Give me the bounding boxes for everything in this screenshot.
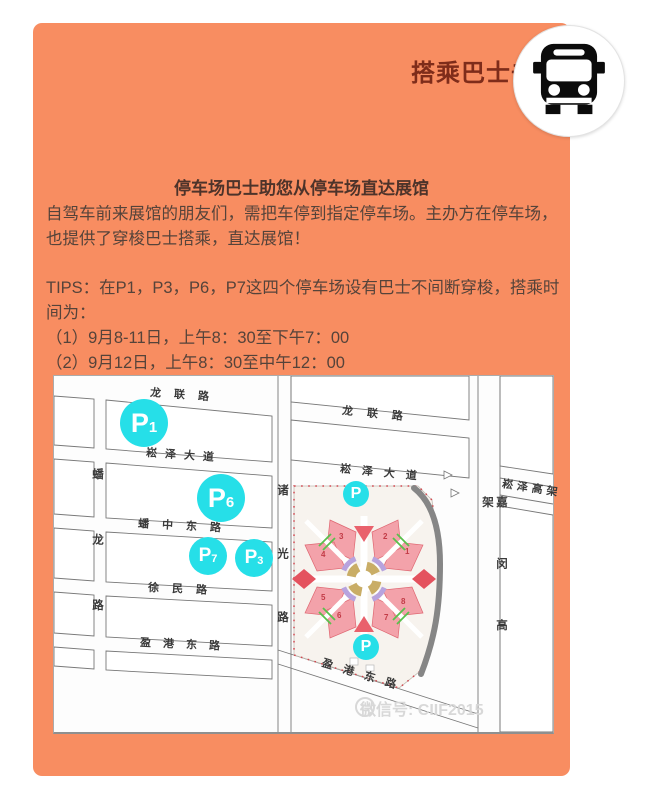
hall-number-7: 7: [384, 614, 388, 622]
watermark: 微信号: CIIF2015: [354, 696, 484, 720]
hall-number-3: 3: [339, 533, 343, 541]
hall-number-5: 5: [321, 594, 325, 602]
bus-icon: [530, 40, 608, 123]
hall-number-4: 4: [321, 551, 325, 559]
parking-num: 1: [149, 419, 157, 436]
parking-marker-p6: P6: [197, 474, 245, 522]
hall-number-6: 6: [337, 612, 341, 620]
tips-item2: （2）9月12日，上午8：30至中午12：00: [46, 351, 562, 376]
hall-number-1: 1: [405, 548, 409, 556]
hall-number-8: 8: [401, 598, 405, 606]
intro-line2: 也提供了穿梭巴士搭乘，直达展馆！: [46, 227, 562, 252]
tips-item1: （1）9月8-11日，上午8：30至下午7：00: [46, 326, 562, 351]
bus-badge: [513, 25, 625, 137]
parking-marker-venue-bottom: P: [353, 634, 379, 660]
hall-number-2: 2: [383, 533, 387, 541]
parking-num: 3: [257, 555, 263, 567]
parking-marker-p3: P3: [235, 539, 273, 577]
parking-map: 龙联路 崧泽大道 蟠中东路 徐民路 盈港东路 龙联路 崧泽大道 崧泽高架 盈港东…: [53, 375, 554, 734]
parking-marker-venue-top: P: [343, 481, 369, 507]
parking-p: P: [361, 638, 372, 656]
parking-p: P: [199, 545, 212, 567]
intro-line1: 自驾车前来展馆的朋友们，需把车停到指定停车场。主办方在停车场，: [46, 202, 562, 227]
tips-line1: TIPS：在P1，P3，P6，P7这四个停车场设有巴士不间断穿梭，搭乘时: [46, 276, 562, 301]
parking-num: 6: [226, 494, 234, 511]
parking-p: P: [131, 408, 149, 439]
parking-marker-p7: P7: [189, 537, 227, 575]
watermark-text: 微信号: CIIF2015: [360, 696, 484, 720]
road-label-jiamin-viaduct: 嘉闵高架: [480, 496, 508, 732]
parking-num: 7: [211, 553, 217, 565]
road-label-panlong: 蟠龙路: [90, 468, 104, 665]
parking-marker-p1: P1: [120, 399, 168, 447]
article-page: 停车场巴士助您从停车场直达展馆 自驾车前来展馆的朋友们，需把车停到指定停车场。主…: [0, 0, 650, 802]
intro-heading: 停车场巴士助您从停车场直达展馆: [46, 174, 557, 199]
parking-p: P: [351, 485, 362, 503]
tips-line2: 间为：: [46, 301, 562, 326]
parking-p: P: [208, 483, 226, 514]
parking-p: P: [245, 547, 258, 569]
road-label-zhuguang: 诸光路: [275, 484, 289, 675]
